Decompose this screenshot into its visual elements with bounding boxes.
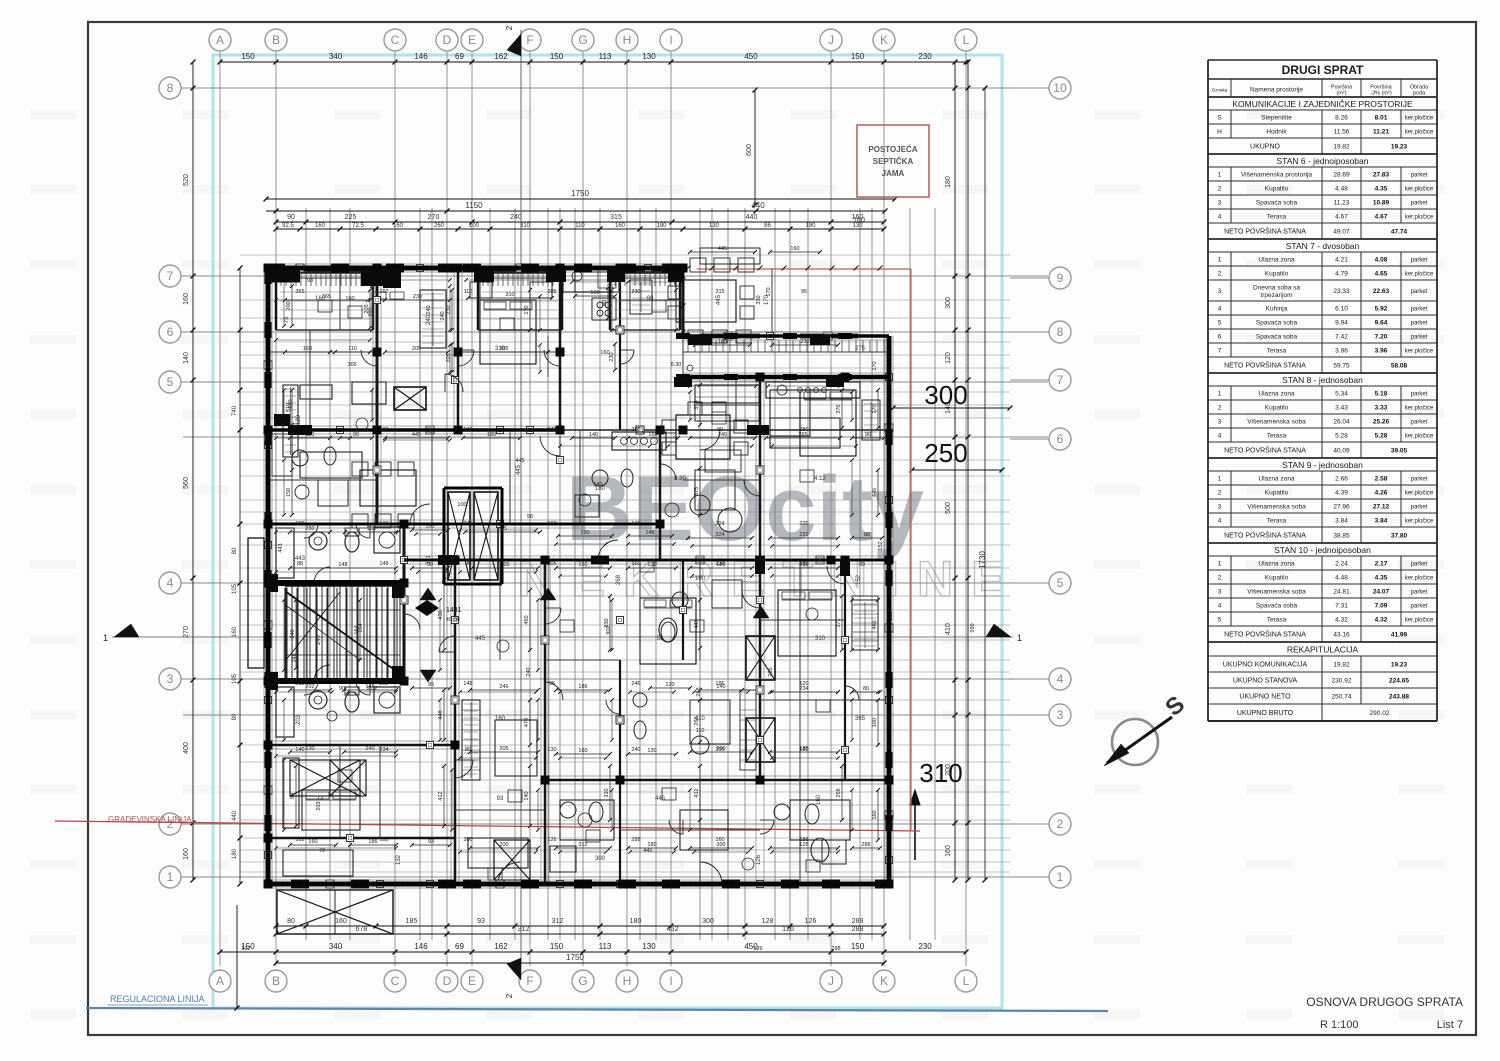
svg-text:parket: parket [1411, 258, 1428, 264]
svg-text:148: 148 [292, 653, 298, 662]
svg-text:Kupatilo: Kupatilo [1265, 405, 1289, 412]
svg-text:365: 365 [855, 716, 866, 722]
svg-text:Spavaća soba: Spavaća soba [1256, 334, 1298, 341]
svg-text:268: 268 [694, 716, 700, 725]
svg-text:4: 4 [1218, 306, 1222, 313]
svg-text:288: 288 [861, 842, 870, 848]
svg-text:5.28: 5.28 [1335, 433, 1348, 440]
svg-text:ker.pločice: ker.pločice [1405, 130, 1434, 136]
svg-text:152: 152 [878, 541, 884, 550]
svg-text:140: 140 [589, 432, 598, 438]
svg-text:445: 445 [643, 848, 652, 854]
svg-text:90: 90 [353, 432, 359, 438]
svg-text:49.07: 49.07 [1333, 229, 1350, 236]
svg-text:4.12: 4.12 [814, 476, 826, 482]
svg-text:445: 445 [872, 488, 878, 497]
svg-text:KOMUNIKACIJE I ZAJEDNIČKE PROS: KOMUNIKACIJE I ZAJEDNIČKE PROSTORIJE [1232, 99, 1413, 109]
svg-text:150: 150 [550, 942, 564, 951]
svg-text:230: 230 [918, 52, 932, 61]
svg-text:100: 100 [457, 502, 466, 508]
svg-text:90: 90 [717, 427, 723, 433]
svg-text:205: 205 [547, 289, 556, 295]
svg-text:3: 3 [1218, 504, 1222, 511]
svg-text:126: 126 [782, 926, 794, 933]
svg-text:130: 130 [647, 562, 656, 568]
svg-text:365: 365 [295, 289, 304, 295]
svg-text:205: 205 [768, 667, 774, 676]
svg-text:28.69: 28.69 [1333, 172, 1350, 179]
svg-text:240: 240 [316, 634, 322, 645]
svg-text:130: 130 [709, 223, 720, 229]
svg-text:245: 245 [463, 521, 472, 527]
svg-text:246: 246 [631, 681, 640, 687]
svg-text:8.26: 8.26 [1335, 115, 1348, 122]
svg-text:10.89: 10.89 [1373, 200, 1390, 207]
svg-text:148: 148 [463, 681, 472, 687]
svg-text:73: 73 [284, 317, 290, 323]
svg-text:105: 105 [232, 673, 238, 684]
svg-text:160: 160 [183, 848, 190, 860]
svg-text:340: 340 [329, 942, 343, 951]
svg-text:Terasa: Terasa [1267, 518, 1287, 525]
svg-text:2: 2 [1057, 817, 1064, 831]
svg-text:160: 160 [945, 845, 952, 857]
svg-text:25.26: 25.26 [1373, 419, 1390, 426]
svg-text:6: 6 [167, 325, 174, 339]
svg-text:90: 90 [339, 686, 345, 692]
svg-text:4: 4 [1218, 433, 1222, 440]
svg-text:3: 3 [167, 672, 174, 686]
svg-text:-3% (m²): -3% (m²) [1370, 91, 1392, 97]
svg-text:88: 88 [297, 561, 303, 567]
svg-text:180: 180 [805, 223, 816, 229]
svg-text:F: F [526, 33, 533, 47]
svg-text:4.26: 4.26 [1375, 490, 1388, 497]
svg-text:56: 56 [527, 514, 533, 520]
svg-text:9.64: 9.64 [1375, 320, 1388, 327]
svg-text:C: C [391, 974, 400, 988]
svg-text:205: 205 [499, 746, 508, 752]
svg-text:1: 1 [1017, 633, 1022, 643]
svg-text:160: 160 [799, 747, 808, 753]
svg-text:160: 160 [232, 626, 238, 637]
svg-text:Spavaća soba: Spavaća soba [1256, 603, 1298, 610]
svg-text:126: 126 [805, 918, 817, 925]
svg-text:300: 300 [595, 856, 606, 862]
svg-text:UKUPNO: UKUPNO [1250, 144, 1281, 151]
svg-text:2: 2 [1218, 490, 1222, 497]
svg-text:Višenamenska soba: Višenamenska soba [1247, 504, 1306, 511]
svg-text:412: 412 [438, 791, 444, 800]
svg-text:162: 162 [494, 52, 508, 61]
svg-text:120: 120 [665, 682, 674, 688]
svg-text:230: 230 [413, 294, 422, 300]
svg-text:160: 160 [578, 748, 587, 754]
svg-text:126: 126 [756, 854, 762, 865]
svg-text:452: 452 [667, 926, 679, 933]
svg-text:2: 2 [1218, 405, 1222, 412]
svg-text:186: 186 [368, 839, 377, 845]
svg-text:370: 370 [836, 404, 842, 413]
svg-text:92.5: 92.5 [282, 223, 294, 229]
svg-text:ker.pločice: ker.pločice [1405, 576, 1434, 582]
svg-text:trpezarijom: trpezarijom [1260, 292, 1292, 299]
svg-text:H: H [1217, 129, 1222, 136]
svg-text:Terasa: Terasa [1267, 433, 1287, 440]
svg-text:2.24: 2.24 [1335, 561, 1348, 568]
svg-text:148: 148 [379, 561, 388, 567]
svg-text:19.82: 19.82 [1333, 662, 1350, 669]
svg-text:300: 300 [924, 380, 967, 410]
svg-text:240: 240 [526, 667, 532, 676]
svg-text:288: 288 [631, 837, 640, 843]
svg-text:H: H [623, 33, 632, 47]
svg-text:19.82: 19.82 [1333, 144, 1350, 151]
svg-text:100: 100 [379, 521, 388, 527]
svg-text:Dnevna soba sa: Dnevna soba sa [1253, 285, 1300, 292]
svg-text:300: 300 [463, 837, 472, 843]
svg-text:I: I [669, 33, 672, 47]
svg-text:Ulazna zona: Ulazna zona [1258, 476, 1295, 483]
svg-text:43.16: 43.16 [1333, 632, 1350, 639]
svg-text:4: 4 [167, 576, 174, 590]
svg-text:180: 180 [945, 176, 952, 188]
svg-text:80: 80 [863, 686, 869, 692]
svg-text:STAN 6 - jednoiposoban: STAN 6 - jednoiposoban [1277, 156, 1369, 166]
svg-text:7.09: 7.09 [1375, 603, 1388, 610]
svg-text:312: 312 [578, 842, 587, 848]
svg-text:38.85: 38.85 [1333, 533, 1350, 540]
svg-text:678: 678 [356, 926, 368, 933]
svg-text:ker.pločice: ker.pločice [1405, 272, 1434, 278]
svg-text:POSTOJEĆA: POSTOJEĆA [868, 145, 917, 154]
svg-text:130: 130 [547, 747, 556, 753]
svg-text:4.21: 4.21 [1335, 257, 1348, 264]
svg-text:parket: parket [1411, 289, 1428, 295]
svg-text:1: 1 [1218, 257, 1222, 264]
svg-text:180: 180 [232, 848, 238, 859]
svg-text:312: 312 [552, 918, 564, 925]
svg-text:7.42: 7.42 [1335, 334, 1348, 341]
svg-text:130: 130 [715, 561, 724, 567]
svg-text:Terasa: Terasa [1267, 348, 1287, 355]
svg-text:445: 445 [718, 246, 727, 252]
svg-text:9.94: 9.94 [1335, 320, 1348, 327]
svg-text:4.08: 4.08 [1375, 257, 1388, 264]
svg-text:F: F [526, 974, 533, 988]
svg-text:K: K [880, 33, 888, 47]
svg-text:160: 160 [816, 794, 822, 805]
svg-text:NETO POVRŠINA STANA: NETO POVRŠINA STANA [1224, 446, 1306, 455]
svg-text:4.48: 4.48 [1335, 575, 1348, 582]
svg-text:ker.pločice: ker.pločice [1405, 491, 1434, 497]
svg-text:268: 268 [836, 788, 842, 797]
svg-text:6.10: 6.10 [1335, 306, 1348, 313]
svg-text:Oznaka: Oznaka [1212, 88, 1228, 93]
svg-text:234: 234 [379, 747, 388, 753]
svg-text:132: 132 [396, 854, 402, 865]
svg-text:1730: 1730 [978, 551, 987, 569]
svg-text:Ulazna zona: Ulazna zona [1258, 561, 1295, 568]
svg-text:8: 8 [1057, 325, 1064, 339]
svg-text:2: 2 [1218, 186, 1222, 193]
svg-text:240: 240 [426, 314, 432, 325]
svg-text:150: 150 [851, 52, 865, 61]
svg-text:240: 240 [440, 311, 446, 320]
svg-text:93: 93 [477, 918, 485, 925]
svg-text:5: 5 [1218, 617, 1222, 624]
svg-text:8.01: 8.01 [1375, 115, 1388, 122]
svg-text:460: 460 [524, 615, 530, 624]
svg-text:parket: parket [1411, 307, 1428, 313]
svg-text:203: 203 [296, 714, 302, 725]
svg-text:205: 205 [547, 561, 556, 567]
svg-text:6: 6 [1218, 334, 1222, 341]
svg-text:312: 312 [518, 926, 530, 933]
svg-text:230.92: 230.92 [1332, 678, 1352, 685]
svg-text:312: 312 [295, 837, 304, 843]
svg-text:parket: parket [1411, 201, 1428, 207]
svg-text:ker.pločice: ker.pločice [1405, 618, 1434, 624]
svg-text:510: 510 [288, 399, 294, 408]
svg-text:2.66: 2.66 [1335, 476, 1348, 483]
svg-text:160: 160 [715, 837, 724, 843]
svg-text:120: 120 [945, 352, 952, 364]
svg-text:440: 440 [746, 214, 758, 221]
svg-text:93: 93 [428, 839, 434, 845]
svg-text:140: 140 [463, 427, 472, 433]
svg-text:220: 220 [799, 532, 808, 538]
svg-text:REKAPITULACIJA: REKAPITULACIJA [1287, 645, 1359, 655]
svg-text:Terasa: Terasa [1267, 617, 1287, 624]
svg-text:List 7: List 7 [1437, 1019, 1463, 1031]
svg-text:Kuhinja: Kuhinja [1266, 306, 1288, 313]
svg-text:2.17: 2.17 [1375, 561, 1388, 568]
svg-text:B: B [272, 33, 280, 47]
svg-text:146: 146 [414, 942, 428, 951]
svg-text:230: 230 [446, 305, 452, 314]
svg-text:10: 10 [1053, 81, 1067, 95]
svg-text:UKUPNO BRUTO: UKUPNO BRUTO [1237, 710, 1294, 717]
svg-text:1481: 1481 [446, 607, 462, 614]
svg-text:parket: parket [1411, 590, 1428, 596]
svg-text:110: 110 [464, 289, 473, 295]
svg-text:180: 180 [630, 918, 642, 925]
svg-text:4.32: 4.32 [1375, 617, 1388, 624]
svg-text:310: 310 [919, 758, 962, 788]
svg-text:160: 160 [600, 350, 609, 356]
svg-text:5.92: 5.92 [1375, 306, 1388, 313]
svg-text:443: 443 [278, 543, 284, 552]
svg-text:180: 180 [487, 432, 496, 438]
svg-text:80: 80 [232, 713, 238, 720]
svg-text:Ulazna zona: Ulazna zona [1258, 391, 1295, 398]
svg-text:Stepenište: Stepenište [1261, 115, 1292, 122]
svg-text:4: 4 [1218, 214, 1222, 221]
svg-text:S: S [1217, 115, 1222, 122]
svg-text:Hodnik: Hodnik [1266, 129, 1287, 136]
svg-text:7: 7 [1057, 373, 1064, 387]
svg-text:4.48: 4.48 [1335, 186, 1348, 193]
svg-text:240: 240 [426, 305, 432, 314]
svg-text:ker.pločice: ker.pločice [1405, 406, 1434, 412]
svg-text:445: 445 [694, 619, 700, 628]
svg-text:160: 160 [183, 293, 190, 305]
svg-text:310: 310 [520, 223, 531, 229]
svg-text:330: 330 [756, 295, 762, 304]
svg-text:160: 160 [578, 562, 587, 568]
svg-text:470: 470 [524, 718, 530, 727]
svg-text:126: 126 [753, 946, 762, 952]
svg-text:180: 180 [656, 223, 667, 229]
svg-text:37.80: 37.80 [1391, 533, 1408, 540]
svg-text:parket: parket [1411, 562, 1428, 568]
svg-text:220: 220 [799, 521, 808, 527]
svg-text:180: 180 [379, 427, 388, 433]
svg-text:E: E [468, 974, 476, 988]
svg-text:160: 160 [315, 223, 326, 229]
svg-text:24.81: 24.81 [1333, 589, 1350, 596]
svg-text:270: 270 [428, 214, 440, 221]
svg-text:J: J [828, 33, 834, 47]
svg-text:H: H [623, 974, 632, 988]
svg-text:113: 113 [599, 52, 612, 61]
svg-text:72: 72 [319, 848, 325, 854]
svg-text:4.39: 4.39 [1335, 490, 1348, 497]
svg-text:100: 100 [469, 223, 480, 229]
svg-text:4.67: 4.67 [1375, 214, 1388, 221]
svg-text:740: 740 [232, 405, 238, 416]
svg-text:90: 90 [427, 562, 433, 568]
svg-text:1: 1 [103, 633, 108, 643]
svg-text:2: 2 [1218, 271, 1222, 278]
svg-text:120: 120 [799, 681, 808, 687]
svg-text:205: 205 [412, 346, 421, 352]
svg-text:G: G [578, 33, 587, 47]
svg-text:160: 160 [872, 718, 878, 727]
svg-text:240: 240 [547, 427, 556, 433]
svg-text:19.23: 19.23 [1391, 144, 1408, 151]
svg-text:113: 113 [599, 942, 612, 951]
svg-text:NETO POVRŠINA STANA: NETO POVRŠINA STANA [1224, 227, 1306, 236]
svg-text:400: 400 [183, 742, 190, 754]
svg-text:86: 86 [764, 223, 771, 229]
svg-text:Višenamenska soba: Višenamenska soba [1247, 589, 1306, 596]
svg-text:160: 160 [495, 716, 506, 722]
svg-text:11.23: 11.23 [1334, 200, 1350, 207]
svg-text:230: 230 [609, 352, 615, 361]
svg-text:3.96: 3.96 [1375, 348, 1388, 355]
svg-text:80: 80 [859, 562, 865, 568]
svg-text:110: 110 [348, 346, 357, 352]
svg-text:208: 208 [295, 681, 304, 687]
svg-text:180: 180 [799, 561, 808, 567]
svg-text:ker.pločice: ker.pločice [1405, 187, 1434, 193]
svg-text:190: 190 [547, 521, 556, 527]
svg-text:J: J [828, 974, 834, 988]
svg-text:160: 160 [308, 839, 317, 845]
svg-text:SEPTIČKA: SEPTIČKA [873, 157, 914, 166]
svg-text:95: 95 [428, 682, 434, 688]
svg-text:8.30: 8.30 [671, 362, 682, 368]
svg-text:7.20: 7.20 [1375, 334, 1388, 341]
svg-text:3.43: 3.43 [1335, 405, 1348, 412]
svg-text:B: B [272, 974, 280, 988]
svg-text:3: 3 [1218, 419, 1222, 426]
svg-text:3: 3 [1218, 589, 1222, 596]
svg-text:47.74: 47.74 [1391, 229, 1408, 236]
svg-text:K: K [880, 974, 888, 988]
svg-text:72.5: 72.5 [352, 223, 364, 229]
svg-text:288: 288 [852, 918, 864, 925]
svg-text:23.33: 23.33 [1333, 288, 1350, 295]
svg-text:Kupatilo: Kupatilo [1265, 271, 1289, 278]
svg-text:140: 140 [183, 352, 190, 364]
svg-text:STAN 10 - jednoiposoban: STAN 10 - jednoiposoban [1274, 545, 1371, 555]
svg-text:4.32: 4.32 [1335, 617, 1348, 624]
svg-text:A: A [216, 33, 224, 47]
svg-text:150: 150 [550, 52, 564, 61]
svg-text:126: 126 [547, 837, 556, 843]
svg-text:90: 90 [465, 561, 471, 567]
svg-text:Kupatilo: Kupatilo [1265, 186, 1289, 193]
svg-text:UKUPNO STANOVA: UKUPNO STANOVA [1233, 678, 1298, 685]
svg-text:250: 250 [924, 438, 967, 468]
svg-text:JAMA: JAMA [882, 169, 905, 178]
svg-text:202: 202 [305, 684, 314, 690]
svg-text:UKUPNO KOMUNIKACIJA: UKUPNO KOMUNIKACIJA [1223, 662, 1308, 669]
svg-text:160: 160 [615, 223, 626, 229]
svg-text:5: 5 [1218, 320, 1222, 327]
svg-text:STAN 8 - jednosoban: STAN 8 - jednosoban [1282, 375, 1363, 385]
svg-text:340: 340 [329, 52, 343, 61]
svg-text:parket: parket [1411, 477, 1428, 483]
svg-text:280: 280 [305, 526, 314, 532]
svg-text:2: 2 [505, 993, 514, 998]
svg-text:445: 445 [516, 464, 522, 475]
svg-text:L: L [963, 974, 970, 988]
svg-text:1150: 1150 [465, 201, 483, 210]
svg-text:Spavaća soba: Spavaća soba [1256, 200, 1298, 207]
svg-text:90: 90 [865, 432, 871, 438]
svg-text:150: 150 [241, 52, 255, 61]
svg-text:27.83: 27.83 [1373, 172, 1390, 179]
svg-text:412: 412 [694, 788, 700, 797]
svg-text:146: 146 [414, 52, 428, 61]
svg-text:445: 445 [716, 294, 722, 305]
svg-text:310: 310 [505, 292, 514, 298]
svg-text:1750: 1750 [571, 189, 589, 198]
svg-text:C: C [391, 33, 400, 47]
svg-text:2.58: 2.58 [1375, 476, 1388, 483]
svg-text:275: 275 [855, 346, 866, 352]
svg-text:902: 902 [606, 625, 612, 634]
svg-text:3.84: 3.84 [1335, 518, 1348, 525]
svg-text:120: 120 [296, 414, 302, 425]
svg-text:440: 440 [232, 810, 238, 821]
svg-text:365: 365 [347, 362, 356, 368]
svg-text:Spavaća soba: Spavaća soba [1256, 320, 1298, 327]
svg-text:4.65: 4.65 [1375, 271, 1388, 278]
svg-text:130: 130 [852, 223, 863, 229]
svg-text:poda: poda [1413, 91, 1426, 97]
svg-text:600: 600 [746, 144, 753, 156]
svg-text:41.99: 41.99 [1391, 632, 1408, 639]
svg-text:170: 170 [766, 287, 772, 296]
svg-text:ker.pločice: ker.pločice [1405, 116, 1434, 122]
svg-text:130: 130 [642, 52, 656, 61]
svg-text:445: 445 [655, 796, 666, 802]
